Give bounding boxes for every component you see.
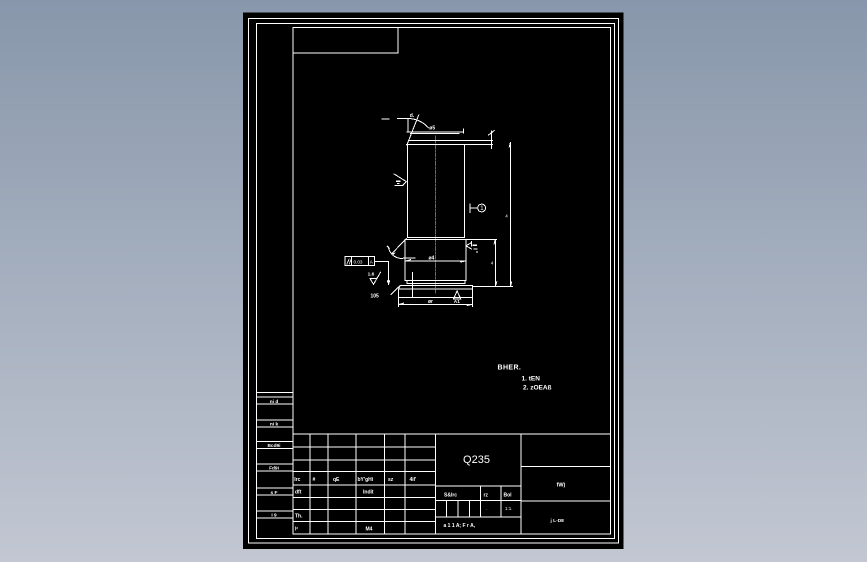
svg-text:1:1.: 1:1. <box>505 506 513 511</box>
svg-text:fW): fW) <box>557 482 566 488</box>
svg-text:a 1 1 A; F r A,: a 1 1 A; F r A, <box>444 523 476 529</box>
svg-text:ni k: ni k <box>270 422 279 428</box>
svg-text:Bcd9i: Bcd9i <box>267 443 280 449</box>
svg-text:4il': 4il' <box>410 477 417 483</box>
svg-text:Q235: Q235 <box>463 454 490 466</box>
svg-text:ør: ør <box>428 299 433 305</box>
svg-text:Irc: Irc <box>294 477 300 483</box>
svg-text:2. zOEAß: 2. zOEAß <box>523 385 552 392</box>
svg-text:Bol: Bol <box>504 492 513 498</box>
svg-text:qE: qE <box>333 477 340 483</box>
svg-text:S&Irc: S&Irc <box>444 492 457 498</box>
svg-text:s F: s F <box>271 490 278 496</box>
svg-text:ni d: ni d <box>270 399 279 405</box>
svg-text:.: . <box>486 506 487 511</box>
svg-text:ø5: ø5 <box>429 126 435 132</box>
svg-text:sz: sz <box>388 477 394 483</box>
svg-text:BHER.: BHER. <box>498 365 522 372</box>
svg-text:1. tEN: 1. tEN <box>522 376 541 383</box>
svg-text:Indit: Indit <box>363 489 374 495</box>
svg-text:Fd9i: Fd9i <box>269 466 279 472</box>
svg-text:ø4: ø4 <box>429 255 435 261</box>
svg-text:105: 105 <box>371 294 380 300</box>
svg-text:rz: rz <box>484 492 489 498</box>
svg-text:I 9: I 9 <box>271 513 277 519</box>
svg-text:M4: M4 <box>366 527 373 533</box>
svg-text:Th.: Th. <box>295 514 303 520</box>
svg-text:1.6: 1.6 <box>368 272 375 278</box>
svg-text:0.03: 0.03 <box>354 260 363 265</box>
svg-text:I²: I² <box>295 526 298 532</box>
svg-text:#: # <box>313 477 316 483</box>
svg-text:d.: d. <box>410 113 415 119</box>
svg-text:dft: dft <box>295 489 302 495</box>
svg-text:bY'gHi: bY'gHi <box>358 477 374 483</box>
svg-text:j L-D8: j L-D8 <box>550 518 565 524</box>
